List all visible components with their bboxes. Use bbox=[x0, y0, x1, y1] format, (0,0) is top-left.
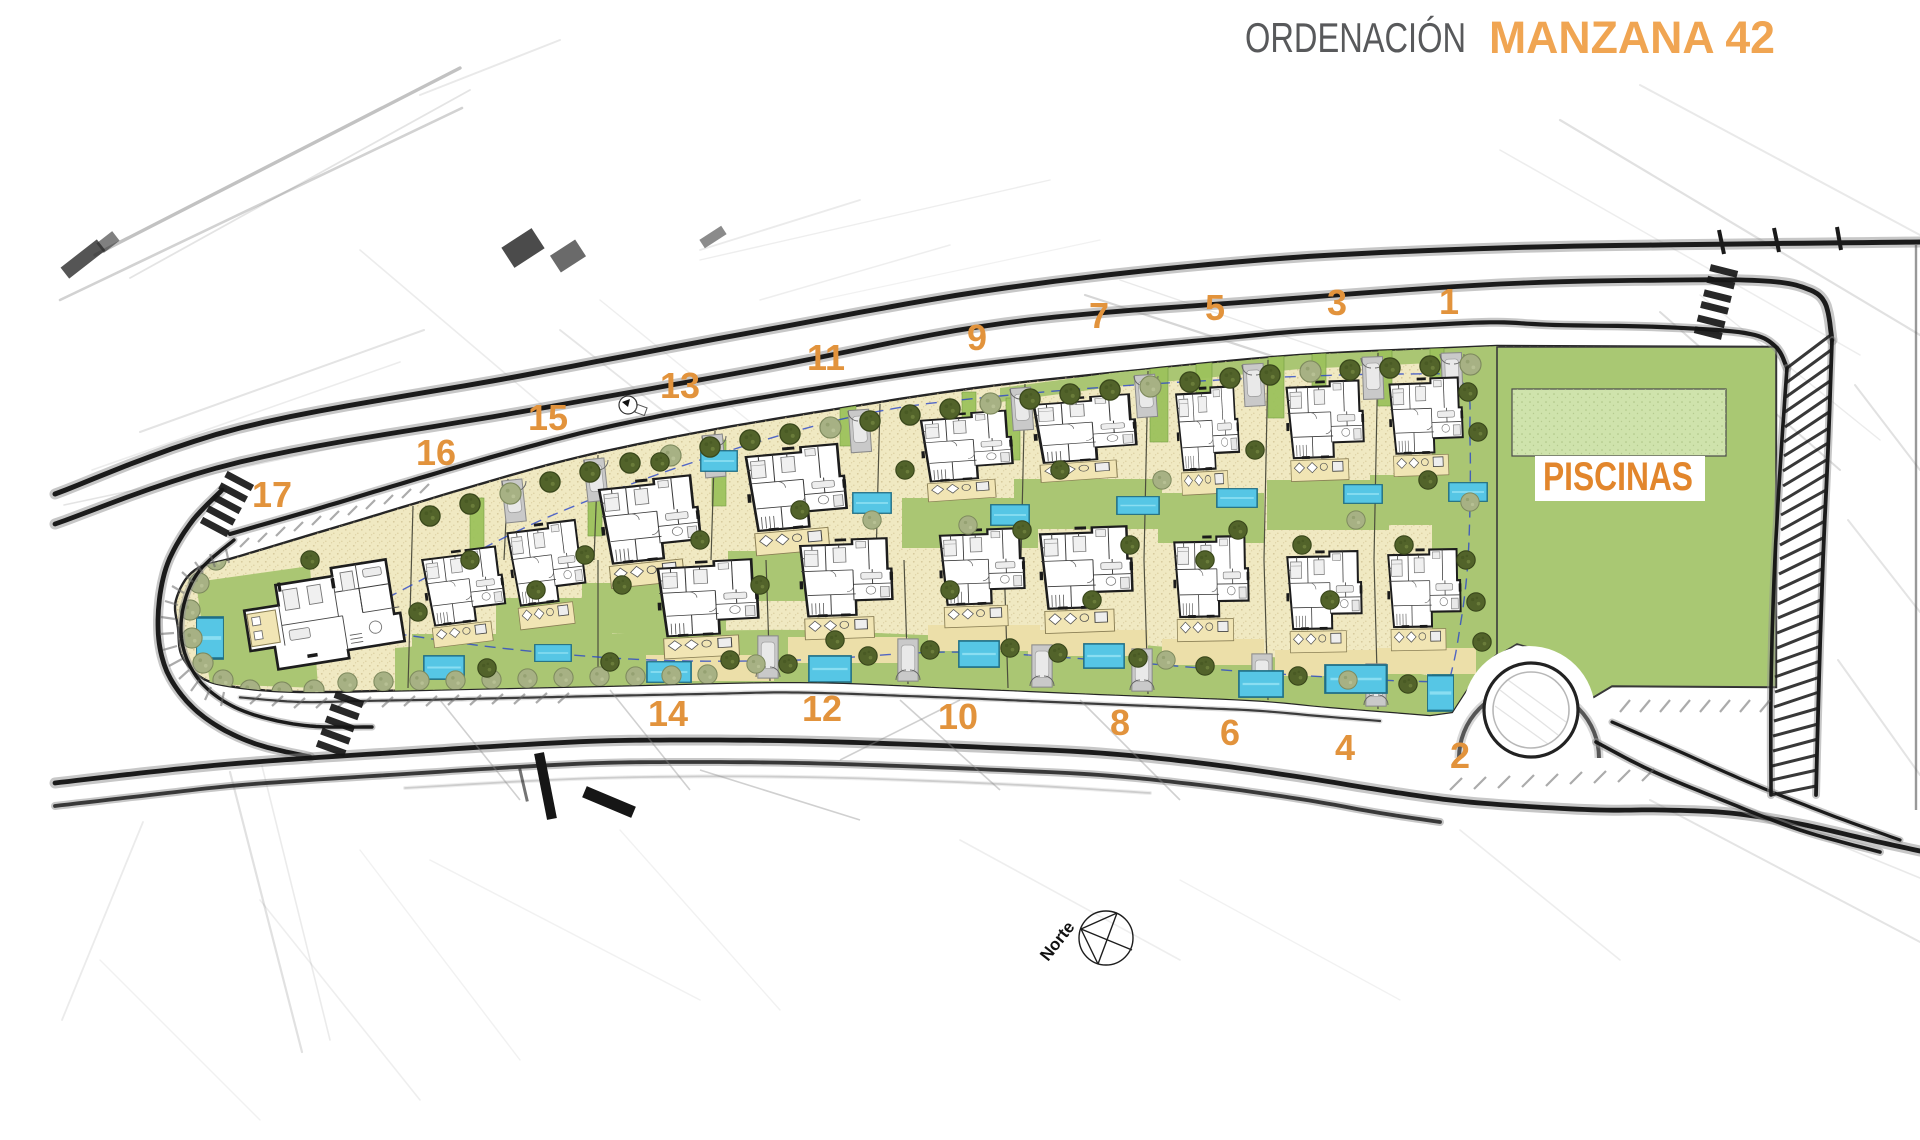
svg-text:5: 5 bbox=[1205, 287, 1225, 328]
svg-text:15: 15 bbox=[528, 397, 568, 438]
svg-text:13: 13 bbox=[660, 365, 700, 406]
svg-text:6: 6 bbox=[1220, 712, 1240, 753]
svg-text:11: 11 bbox=[807, 337, 845, 378]
svg-text:8: 8 bbox=[1110, 702, 1130, 743]
svg-text:12: 12 bbox=[802, 688, 842, 729]
svg-text:14: 14 bbox=[648, 693, 688, 734]
svg-text:ORDENACIÓN: ORDENACIÓN bbox=[1245, 14, 1466, 61]
svg-text:9: 9 bbox=[967, 317, 987, 358]
svg-text:PISCINAS: PISCINAS bbox=[1543, 455, 1693, 499]
svg-text:2: 2 bbox=[1450, 735, 1470, 776]
svg-text:4: 4 bbox=[1335, 727, 1355, 768]
svg-text:MANZANA 42: MANZANA 42 bbox=[1489, 12, 1775, 63]
svg-text:10: 10 bbox=[938, 696, 978, 737]
svg-text:1: 1 bbox=[1439, 281, 1459, 322]
svg-text:16: 16 bbox=[416, 432, 456, 473]
svg-text:7: 7 bbox=[1089, 295, 1109, 336]
svg-text:3: 3 bbox=[1327, 282, 1347, 323]
svg-text:17: 17 bbox=[252, 474, 292, 515]
